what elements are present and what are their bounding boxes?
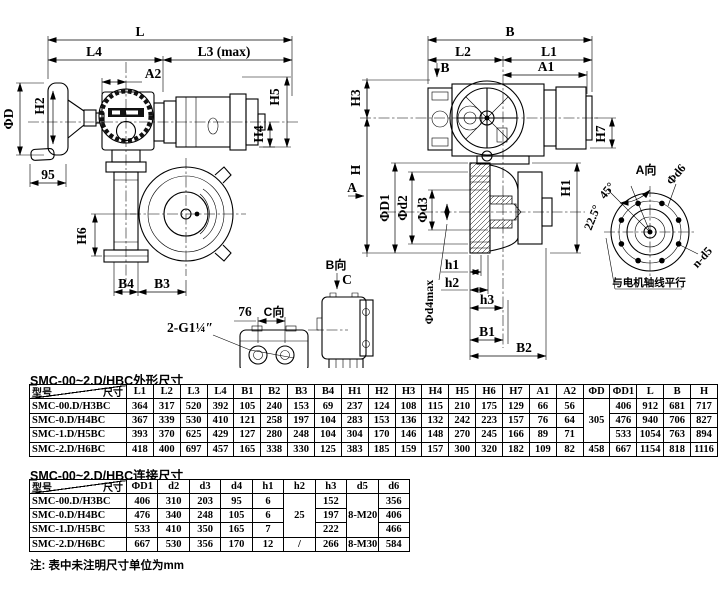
value-cell: 418: [127, 442, 154, 456]
conduit-label: 2-G1¼″: [167, 320, 213, 335]
value-cell: 6: [252, 494, 283, 508]
dim-label-B2: B2: [516, 340, 532, 355]
value-cell: 305: [583, 399, 610, 442]
value-cell: 266: [315, 537, 346, 551]
dim-label-phid3: Φd3: [415, 197, 430, 223]
value-cell: 105: [221, 508, 252, 522]
value-cell: 159: [395, 442, 422, 456]
column-header: L4: [207, 385, 234, 399]
value-cell: 364: [127, 399, 154, 413]
value-cell: 370: [153, 428, 180, 442]
dim-label-H: H: [348, 164, 363, 175]
value-cell: 165: [221, 523, 252, 537]
dim-label-phiD1: ΦD1: [377, 194, 392, 222]
column-header: H3: [395, 385, 422, 399]
value-cell: 153: [368, 413, 395, 427]
value-cell: 64: [556, 413, 583, 427]
column-header: H7: [503, 385, 530, 399]
value-cell: 166: [503, 428, 530, 442]
value-cell: 410: [158, 523, 189, 537]
value-cell: 330: [288, 442, 315, 456]
column-header: H1: [341, 385, 368, 399]
value-cell: 530: [158, 537, 189, 551]
parallel-note: 与电机轴线平行: [612, 276, 686, 289]
dim-label-L3: L3 (max): [198, 44, 251, 59]
value-cell: 248: [288, 428, 315, 442]
value-cell: 681: [664, 399, 691, 413]
value-cell: 584: [378, 537, 410, 551]
value-cell: 82: [556, 442, 583, 456]
dim-label-45deg: 45°: [596, 179, 617, 201]
table-row: SMC-00.D/H3BC406310203956251528-M20356: [30, 494, 410, 508]
value-cell: 108: [395, 399, 422, 413]
value-cell: 533: [127, 523, 158, 537]
dim-label-phiD: ΦD: [1, 108, 16, 129]
technical-drawing: L L4 L3 (max) A2 H2 ΦD 95 H5 H4 H6: [0, 0, 723, 368]
value-cell: 210: [449, 399, 476, 413]
column-header: B1: [234, 385, 261, 399]
view-c-detail: 2-G1¼″ 76 C向: [167, 304, 308, 368]
value-cell: 203: [189, 494, 220, 508]
column-header: H5: [449, 385, 476, 399]
value-cell: 25: [284, 494, 315, 537]
value-cell: 240: [261, 399, 288, 413]
value-cell: 339: [153, 413, 180, 427]
dim-label-H4: H4: [251, 125, 266, 143]
value-cell: 185: [368, 442, 395, 456]
view-b-c-arrow: C: [342, 272, 352, 287]
column-header: d2: [158, 480, 189, 494]
value-cell: 104: [315, 428, 342, 442]
model-cell: SMC-0.D/H4BC: [30, 413, 127, 427]
dim-label-H7: H7: [593, 125, 608, 143]
value-cell: 300: [449, 442, 476, 456]
value-cell: 89: [529, 428, 556, 442]
value-cell: /: [284, 537, 315, 551]
value-cell: 350: [189, 523, 220, 537]
value-cell: 248: [189, 508, 220, 522]
value-cell: 1116: [691, 442, 718, 456]
corner-header-cell: 尺寸型号: [30, 385, 127, 399]
dim-label-nd5: n-d5: [689, 244, 715, 271]
value-cell: 912: [637, 399, 664, 413]
value-cell: 121: [234, 413, 261, 427]
value-cell: 476: [127, 508, 158, 522]
unit-note: 注: 表中未注明尺寸单位为mm: [30, 557, 184, 573]
value-cell: 157: [422, 442, 449, 456]
value-cell: 304: [341, 428, 368, 442]
value-cell: 165: [234, 442, 261, 456]
value-cell: 338: [261, 442, 288, 456]
value-cell: 7: [252, 523, 283, 537]
column-header: L3: [180, 385, 207, 399]
value-cell: 392: [207, 399, 234, 413]
value-cell: 466: [378, 523, 410, 537]
model-cell: SMC-00.D/H3BC: [30, 494, 127, 508]
value-cell: 383: [341, 442, 368, 456]
value-cell: 530: [180, 413, 207, 427]
dim-label-phid6: Φd6: [663, 161, 688, 187]
dim-label-95: 95: [41, 167, 55, 182]
value-cell: 410: [207, 413, 234, 427]
value-cell: 109: [529, 442, 556, 456]
value-cell: 706: [664, 413, 691, 427]
value-cell: 197: [315, 508, 346, 522]
value-cell: 223: [476, 413, 503, 427]
column-header: B3: [288, 385, 315, 399]
value-cell: 12: [252, 537, 283, 551]
value-cell: 71: [556, 428, 583, 442]
dim-label-H5: H5: [267, 88, 282, 106]
value-cell: 222: [315, 523, 346, 537]
value-cell: 95: [221, 494, 252, 508]
value-cell: 533: [610, 428, 637, 442]
dim-label-L1: L1: [541, 44, 557, 59]
dim-label-B: B: [505, 24, 514, 39]
dim-label-h1: h1: [445, 257, 460, 272]
column-header: A1: [529, 385, 556, 399]
value-cell: 182: [503, 442, 530, 456]
model-cell: SMC-2.D/H6BC: [30, 442, 127, 456]
value-cell: 406: [378, 508, 410, 522]
value-cell: 115: [422, 399, 449, 413]
column-header: ΦD1: [127, 480, 158, 494]
dim-label-B3: B3: [154, 276, 170, 291]
value-cell: 124: [368, 399, 395, 413]
value-cell: 429: [207, 428, 234, 442]
value-cell: 8-M20: [347, 494, 378, 537]
value-cell: 340: [158, 508, 189, 522]
value-cell: 400: [153, 442, 180, 456]
dim-label-A-arrow: A: [347, 180, 357, 195]
view-b-title: B向: [326, 257, 347, 272]
value-cell: 280: [261, 428, 288, 442]
column-header: d3: [189, 480, 220, 494]
column-header: L2: [153, 385, 180, 399]
view-a-title: A向: [636, 162, 657, 177]
column-header: H4: [422, 385, 449, 399]
value-cell: 146: [395, 428, 422, 442]
dim-label-h2: h2: [445, 275, 460, 290]
value-cell: 136: [395, 413, 422, 427]
column-header: h2: [284, 480, 315, 494]
column-header: ΦD1: [610, 385, 637, 399]
value-cell: 129: [503, 399, 530, 413]
column-header: d4: [221, 480, 252, 494]
value-cell: 197: [288, 413, 315, 427]
value-cell: 283: [341, 413, 368, 427]
model-cell: SMC-0.D/H4BC: [30, 508, 127, 522]
value-cell: 476: [610, 413, 637, 427]
value-cell: 1054: [637, 428, 664, 442]
drawing-sheet: L L4 L3 (max) A2 H2 ΦD 95 H5 H4 H6: [0, 0, 723, 590]
table-row: SMC-1.D/H5BC3933706254291272802481043041…: [30, 428, 718, 442]
value-cell: 894: [691, 428, 718, 442]
dim-label-225deg: 22.5°: [581, 203, 604, 232]
value-cell: 258: [261, 413, 288, 427]
dim-label-phid4max: Φd4max: [422, 280, 436, 325]
view-c-title: C向: [264, 304, 285, 319]
left-view-geometry: [28, 62, 300, 284]
table-row: SMC-2.D/H6BC66753035617012/2668-M30584: [30, 537, 410, 551]
value-cell: 667: [127, 537, 158, 551]
dim-label-H1: H1: [558, 179, 573, 197]
value-cell: 717: [691, 399, 718, 413]
table-row: SMC-0.D/H4BC3673395304101212581971042831…: [30, 413, 718, 427]
value-cell: 237: [341, 399, 368, 413]
value-cell: 457: [207, 442, 234, 456]
view-b-detail: B向 C: [308, 257, 373, 368]
value-cell: 170: [368, 428, 395, 442]
column-header: H: [691, 385, 718, 399]
value-cell: 393: [127, 428, 154, 442]
model-cell: SMC-2.D/H6BC: [30, 537, 127, 551]
value-cell: 356: [189, 537, 220, 551]
value-cell: 827: [691, 413, 718, 427]
value-cell: 667: [610, 442, 637, 456]
table-row: SMC-00.D/H3BC364317520392105240153692371…: [30, 399, 718, 413]
value-cell: 125: [315, 442, 342, 456]
value-cell: 104: [315, 413, 342, 427]
dim-label-L2: L2: [455, 44, 471, 59]
table-row: SMC-2.D/H6BC4184006974571653383301253831…: [30, 442, 718, 456]
dim-label-H6: H6: [74, 227, 89, 245]
value-cell: 818: [664, 442, 691, 456]
dim-label-H2: H2: [32, 97, 47, 115]
column-header: A2: [556, 385, 583, 399]
dim-label-B4: B4: [118, 276, 134, 291]
column-header: d5: [347, 480, 378, 494]
connection-dimensions-table: 尺寸型号ΦD1d2d3d4h1h2h3d5d6SMC-00.D/H3BC4063…: [29, 479, 410, 552]
dim-label-L: L: [135, 24, 144, 39]
column-header: ΦD: [583, 385, 610, 399]
dim-label-B1: B1: [479, 324, 495, 339]
dim-label-h3: h3: [480, 292, 495, 307]
column-header: B: [664, 385, 691, 399]
dim-label-B-arrow: B: [440, 60, 449, 75]
column-header: H6: [476, 385, 503, 399]
column-header: B4: [315, 385, 342, 399]
model-cell: SMC-00.D/H3BC: [30, 399, 127, 413]
value-cell: 697: [180, 442, 207, 456]
column-header: d6: [378, 480, 410, 494]
value-cell: 6: [252, 508, 283, 522]
value-cell: 317: [153, 399, 180, 413]
value-cell: 406: [127, 494, 158, 508]
value-cell: 157: [503, 413, 530, 427]
corner-header-cell: 尺寸型号: [30, 480, 127, 494]
value-cell: 458: [583, 442, 610, 456]
value-cell: 270: [449, 428, 476, 442]
value-cell: 356: [378, 494, 410, 508]
column-header: L: [637, 385, 664, 399]
value-cell: 940: [637, 413, 664, 427]
column-header: H2: [368, 385, 395, 399]
value-cell: 175: [476, 399, 503, 413]
dim-label-A1: A1: [538, 59, 555, 74]
value-cell: 625: [180, 428, 207, 442]
value-cell: 245: [476, 428, 503, 442]
value-cell: 152: [315, 494, 346, 508]
value-cell: 148: [422, 428, 449, 442]
dim-label-phid2: Φd2: [395, 195, 410, 221]
value-cell: 69: [315, 399, 342, 413]
model-cell: SMC-1.D/H5BC: [30, 428, 127, 442]
value-cell: 66: [529, 399, 556, 413]
value-cell: 242: [449, 413, 476, 427]
value-cell: 8-M30: [347, 537, 378, 551]
column-header: h3: [315, 480, 346, 494]
dim-label-76: 76: [238, 304, 252, 319]
value-cell: 132: [422, 413, 449, 427]
value-cell: 127: [234, 428, 261, 442]
value-cell: 310: [158, 494, 189, 508]
value-cell: 1154: [637, 442, 664, 456]
value-cell: 763: [664, 428, 691, 442]
column-header: B2: [261, 385, 288, 399]
dim-label-A2: A2: [145, 66, 162, 81]
model-cell: SMC-1.D/H5BC: [30, 523, 127, 537]
value-cell: 320: [476, 442, 503, 456]
value-cell: 105: [234, 399, 261, 413]
value-cell: 406: [610, 399, 637, 413]
column-header: L1: [127, 385, 154, 399]
value-cell: 76: [529, 413, 556, 427]
column-header: h1: [252, 480, 283, 494]
overall-dimensions-table: 尺寸型号L1L2L3L4B1B2B3B4H1H2H3H4H5H6H7A1A2ΦD…: [29, 384, 718, 457]
dim-label-L4: L4: [86, 44, 102, 59]
value-cell: 56: [556, 399, 583, 413]
dim-label-H3: H3: [348, 89, 363, 107]
view-a-flange: A向 45° 22.5° Φd6 n-d5 与电机轴线平行: [581, 161, 715, 289]
value-cell: 520: [180, 399, 207, 413]
value-cell: 367: [127, 413, 154, 427]
value-cell: 170: [221, 537, 252, 551]
value-cell: 153: [288, 399, 315, 413]
